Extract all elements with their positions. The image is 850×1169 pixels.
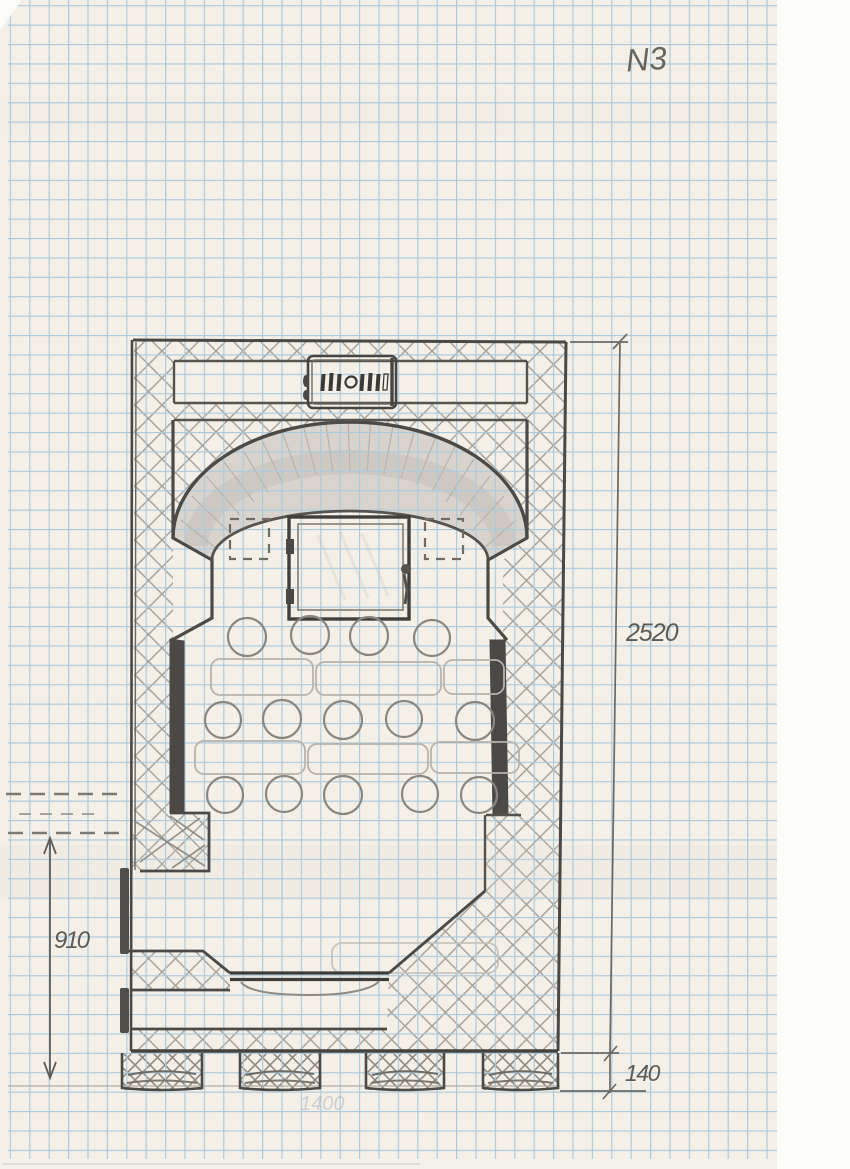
svg-text:N3: N3 — [625, 40, 669, 79]
svg-text:140: 140 — [625, 1060, 661, 1086]
svg-text:1400: 1400 — [300, 1093, 345, 1115]
svg-text:2520: 2520 — [625, 619, 679, 647]
svg-text:910: 910 — [54, 927, 91, 954]
